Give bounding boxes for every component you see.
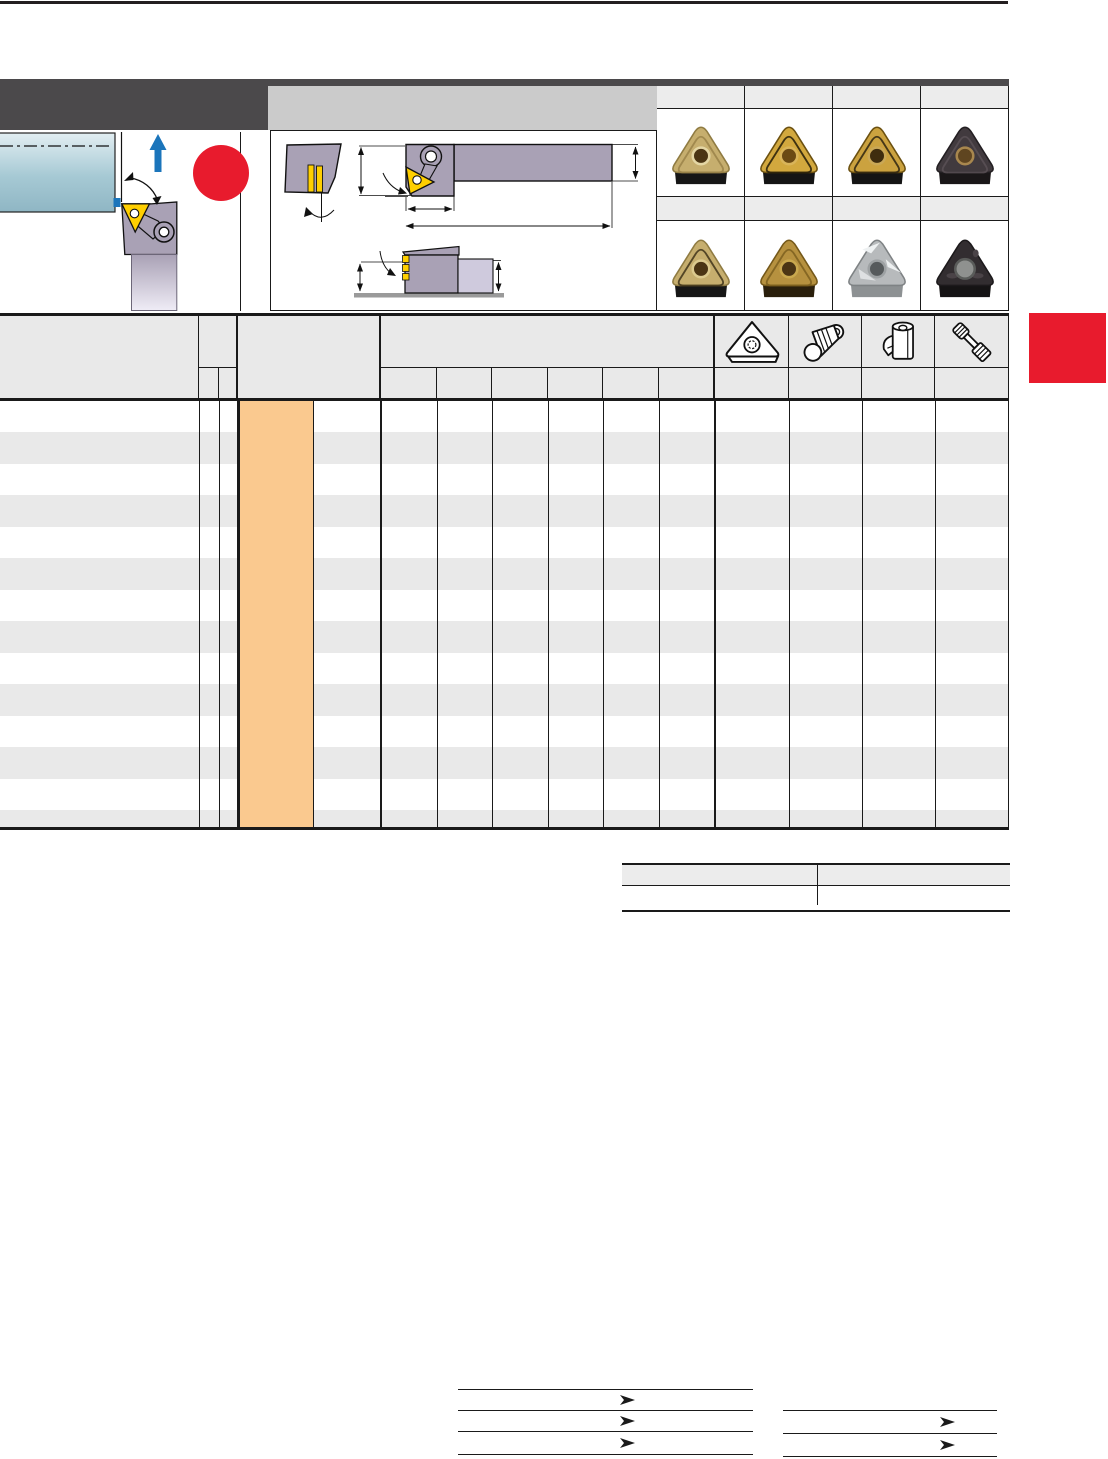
feed-direction-arrow-icon — [150, 134, 167, 172]
clamp-pin-icon — [789, 316, 861, 367]
gallery-header-cell — [745, 86, 833, 109]
header-cell-designation — [0, 316, 199, 398]
top-rule — [0, 1, 1008, 4]
header-cell-spare-pin — [789, 316, 862, 368]
header-subcell-dim — [548, 368, 603, 398]
arrow-icon — [940, 1417, 955, 1427]
header-light-block — [268, 86, 657, 130]
arrow-icon — [620, 1438, 635, 1448]
gallery-header-cell — [921, 197, 1009, 221]
header-subcell-spare — [862, 368, 935, 398]
header-cell-spare-screw — [935, 316, 1009, 368]
header-subcell-hand-left — [199, 368, 219, 398]
footer-link-row — [783, 1434, 997, 1457]
footer-link-row — [458, 1390, 753, 1411]
catalog-page — [0, 0, 1108, 1459]
header-subcell-dim — [381, 368, 437, 398]
header-subcell-dim — [437, 368, 492, 398]
footer-link-row — [458, 1432, 753, 1455]
table-body — [0, 401, 1009, 827]
insert-photo — [921, 109, 1009, 197]
screw-icon — [935, 316, 1008, 367]
footnote-table-divider — [817, 865, 818, 905]
insert-photo — [745, 221, 833, 311]
insert-photo-bronze — [748, 230, 830, 302]
header-subcell-dim — [492, 368, 548, 398]
insert-photo-gold-plain — [660, 117, 742, 189]
header-subcell-dim — [603, 368, 659, 398]
insert-photo-silver — [836, 230, 918, 302]
header-cell-dimensions — [381, 316, 715, 368]
clamp-icon — [862, 316, 934, 367]
insert-photo — [657, 109, 745, 197]
gallery-header-cell — [833, 197, 921, 221]
footnote-table — [622, 863, 1010, 912]
insert-photo — [657, 221, 745, 311]
insert-photo — [833, 109, 921, 197]
insert-gallery — [657, 79, 1009, 311]
dimension-drawing-svg — [271, 131, 655, 309]
header-subcell-dim — [659, 368, 715, 398]
header-cell-ordering-code — [238, 316, 381, 398]
depth-of-cut-mark — [114, 198, 121, 207]
gallery-header-cell — [921, 86, 1009, 109]
clamp-ring-inner — [159, 227, 169, 237]
insert-photo-tan — [660, 230, 742, 302]
insert-photo — [833, 221, 921, 311]
catalog-table — [0, 313, 1009, 830]
header-subcell-hand-right — [219, 368, 238, 398]
insert-photo-gold-dark — [836, 117, 918, 189]
footer-links-right — [783, 1410, 997, 1457]
workpiece-cylinder — [0, 133, 115, 212]
header-cell-hand — [199, 316, 238, 368]
gallery-header-cell — [657, 197, 745, 221]
insert-photo-black — [924, 230, 1006, 302]
gallery-header-cell — [745, 197, 833, 221]
footer-link-row — [458, 1411, 753, 1432]
rotation-arc-icon — [130, 178, 158, 200]
arrow-icon — [620, 1395, 635, 1405]
insert-hole — [130, 209, 139, 218]
header-dark-block — [0, 86, 268, 130]
footnote-table-header-row — [622, 865, 1010, 886]
highlight-column — [239, 401, 314, 827]
header-cell-spare-clamp — [862, 316, 935, 368]
arrow-icon — [620, 1416, 635, 1426]
gallery-header-cell — [833, 86, 921, 109]
insert-photo — [921, 221, 1009, 311]
gallery-grid — [657, 86, 1009, 311]
header-subcell-spare — [789, 368, 862, 398]
highlight-circle — [193, 145, 249, 201]
gallery-header-cell — [657, 86, 745, 109]
header-subcell-spare — [935, 368, 1009, 398]
footer-link-row — [783, 1411, 997, 1434]
arrow-icon — [940, 1440, 955, 1450]
insert-photo — [745, 109, 833, 197]
header-cell-spare-shim — [715, 316, 789, 368]
insert-photo-black-cvd — [924, 117, 1006, 189]
gallery-top-bar — [657, 79, 1009, 86]
footer-links-left — [458, 1389, 753, 1455]
tool-holder-shank — [132, 255, 177, 311]
header-subcell-spare — [715, 368, 789, 398]
chapter-tab — [1029, 313, 1106, 383]
shim-icon — [715, 316, 788, 367]
insert-photo-gold-coated — [748, 117, 830, 189]
dimension-drawing — [270, 130, 657, 311]
